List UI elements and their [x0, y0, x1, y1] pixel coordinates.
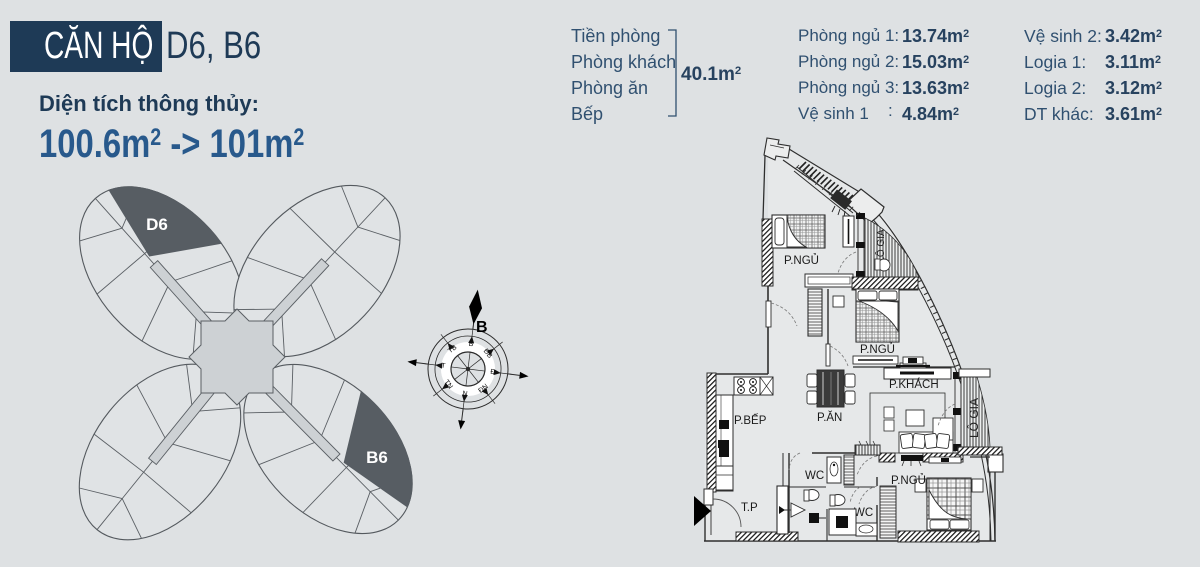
svg-text:P.NGỦ: P.NGỦ: [891, 474, 926, 487]
svg-text:P.NGỦ: P.NGỦ: [860, 343, 895, 356]
svg-text:LÔ GIA: LÔ GIA: [874, 229, 887, 263]
svg-text:LÔ GIA: LÔ GIA: [966, 398, 981, 438]
svg-text:B6: B6: [366, 448, 388, 467]
svg-text:P.KHÁCH: P.KHÁCH: [889, 378, 939, 391]
svg-text:B: B: [476, 319, 488, 336]
svg-text:P.BẾP: P.BẾP: [734, 414, 767, 427]
svg-text:D6: D6: [146, 215, 168, 234]
svg-text:T.P: T.P: [741, 502, 758, 514]
svg-text:N: N: [462, 390, 468, 398]
svg-text:Đ: Đ: [490, 369, 496, 377]
svg-text:WC: WC: [854, 507, 873, 519]
svg-text:P.NGỦ: P.NGỦ: [784, 254, 819, 267]
svg-text:P.ĂN: P.ĂN: [817, 411, 842, 424]
svg-text:WC: WC: [805, 470, 824, 482]
